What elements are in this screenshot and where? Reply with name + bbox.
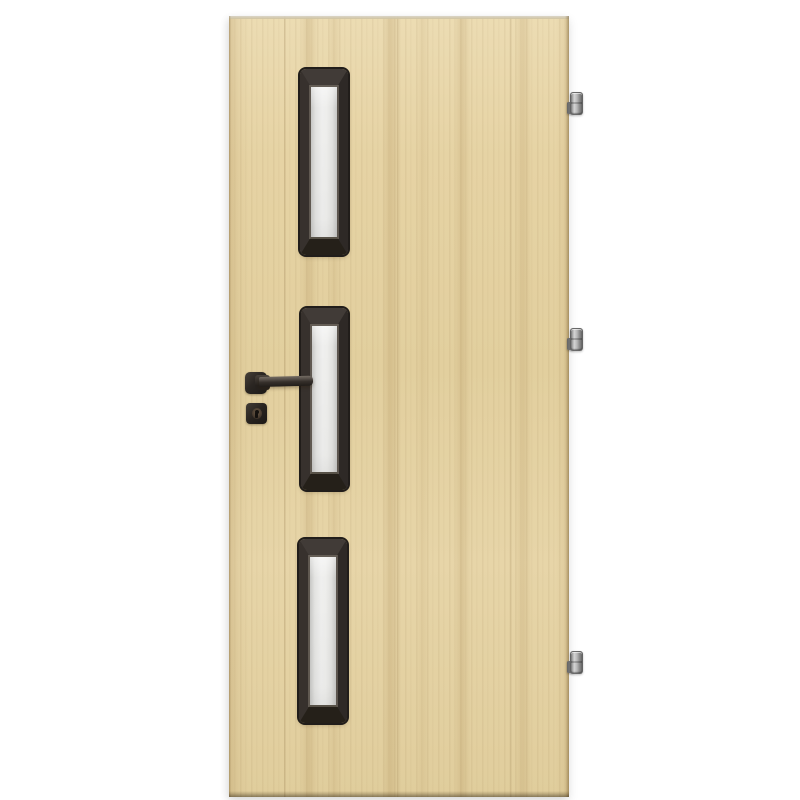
handle-lever	[259, 376, 313, 387]
frosted-glass-top	[311, 87, 337, 237]
hinge-top-knuckle	[570, 92, 583, 115]
door-left-edge	[229, 16, 231, 797]
keyhole-escutcheon	[246, 403, 267, 424]
frosted-glass-middle	[312, 326, 337, 472]
frosted-glass-bottom	[310, 557, 336, 705]
keyhole	[252, 408, 262, 419]
glazed-panel-top	[300, 69, 348, 255]
keyhole-stem	[255, 413, 258, 418]
hinge-middle-knuckle	[570, 328, 583, 351]
hinge-middle	[567, 328, 583, 351]
door-slab	[229, 16, 569, 797]
hinge-top	[567, 92, 583, 115]
glazed-panel-bottom	[299, 539, 347, 723]
hinge-bottom	[567, 651, 583, 674]
hinge-bottom-knuckle	[570, 651, 583, 674]
door-right-edge	[565, 16, 569, 797]
glazed-panel-middle	[301, 308, 348, 490]
product-photo-canvas	[0, 0, 800, 800]
door-bottom-edge	[229, 791, 569, 797]
door-top-edge	[229, 16, 569, 19]
